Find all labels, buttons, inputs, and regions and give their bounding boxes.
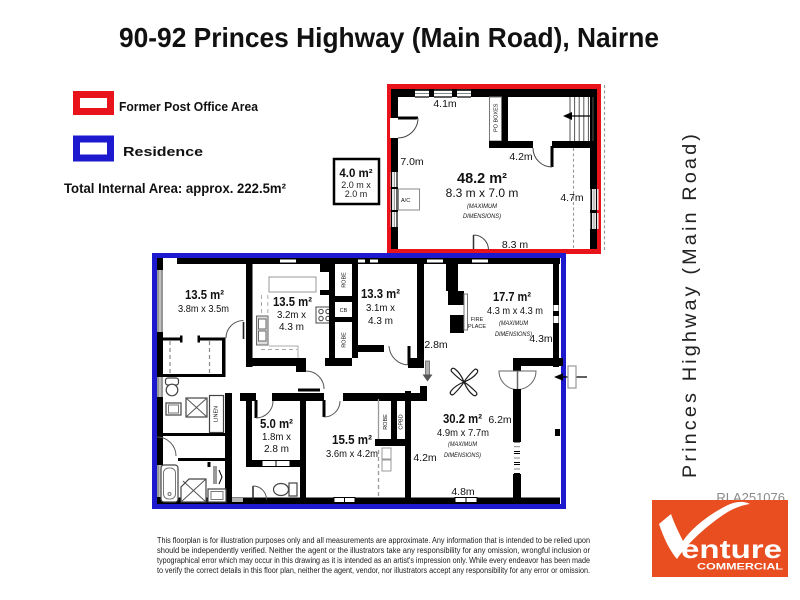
svg-text:typographical error which may: typographical error which may occur in t… xyxy=(157,556,590,565)
svg-text:to verify the correct details: to verify the correct details in this fl… xyxy=(157,566,590,575)
svg-text:This floorplan is for illustra: This floorplan is for illustration purpo… xyxy=(157,536,590,545)
svg-text:should be independently verifi: should be independently verified. Neithe… xyxy=(157,546,590,555)
